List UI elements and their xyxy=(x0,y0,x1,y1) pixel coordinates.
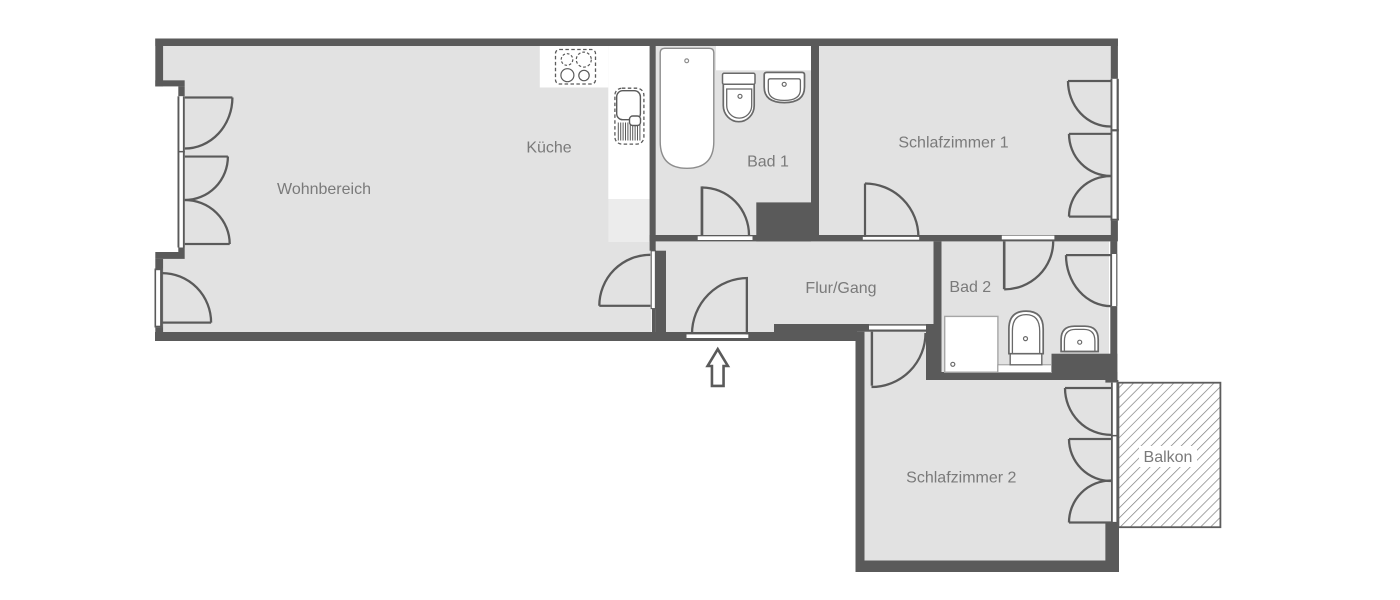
svg-text:Flur/Gang: Flur/Gang xyxy=(805,280,876,297)
svg-text:Küche: Küche xyxy=(526,140,571,157)
svg-text:Wohnbereich: Wohnbereich xyxy=(277,181,371,198)
svg-text:Bad 1: Bad 1 xyxy=(747,154,789,171)
svg-text:Bad 2: Bad 2 xyxy=(949,279,991,296)
svg-text:Schlafzimmer 1: Schlafzimmer 1 xyxy=(898,135,1008,152)
svg-text:Balkon: Balkon xyxy=(1144,449,1193,466)
svg-text:Schlafzimmer 2: Schlafzimmer 2 xyxy=(906,470,1016,487)
